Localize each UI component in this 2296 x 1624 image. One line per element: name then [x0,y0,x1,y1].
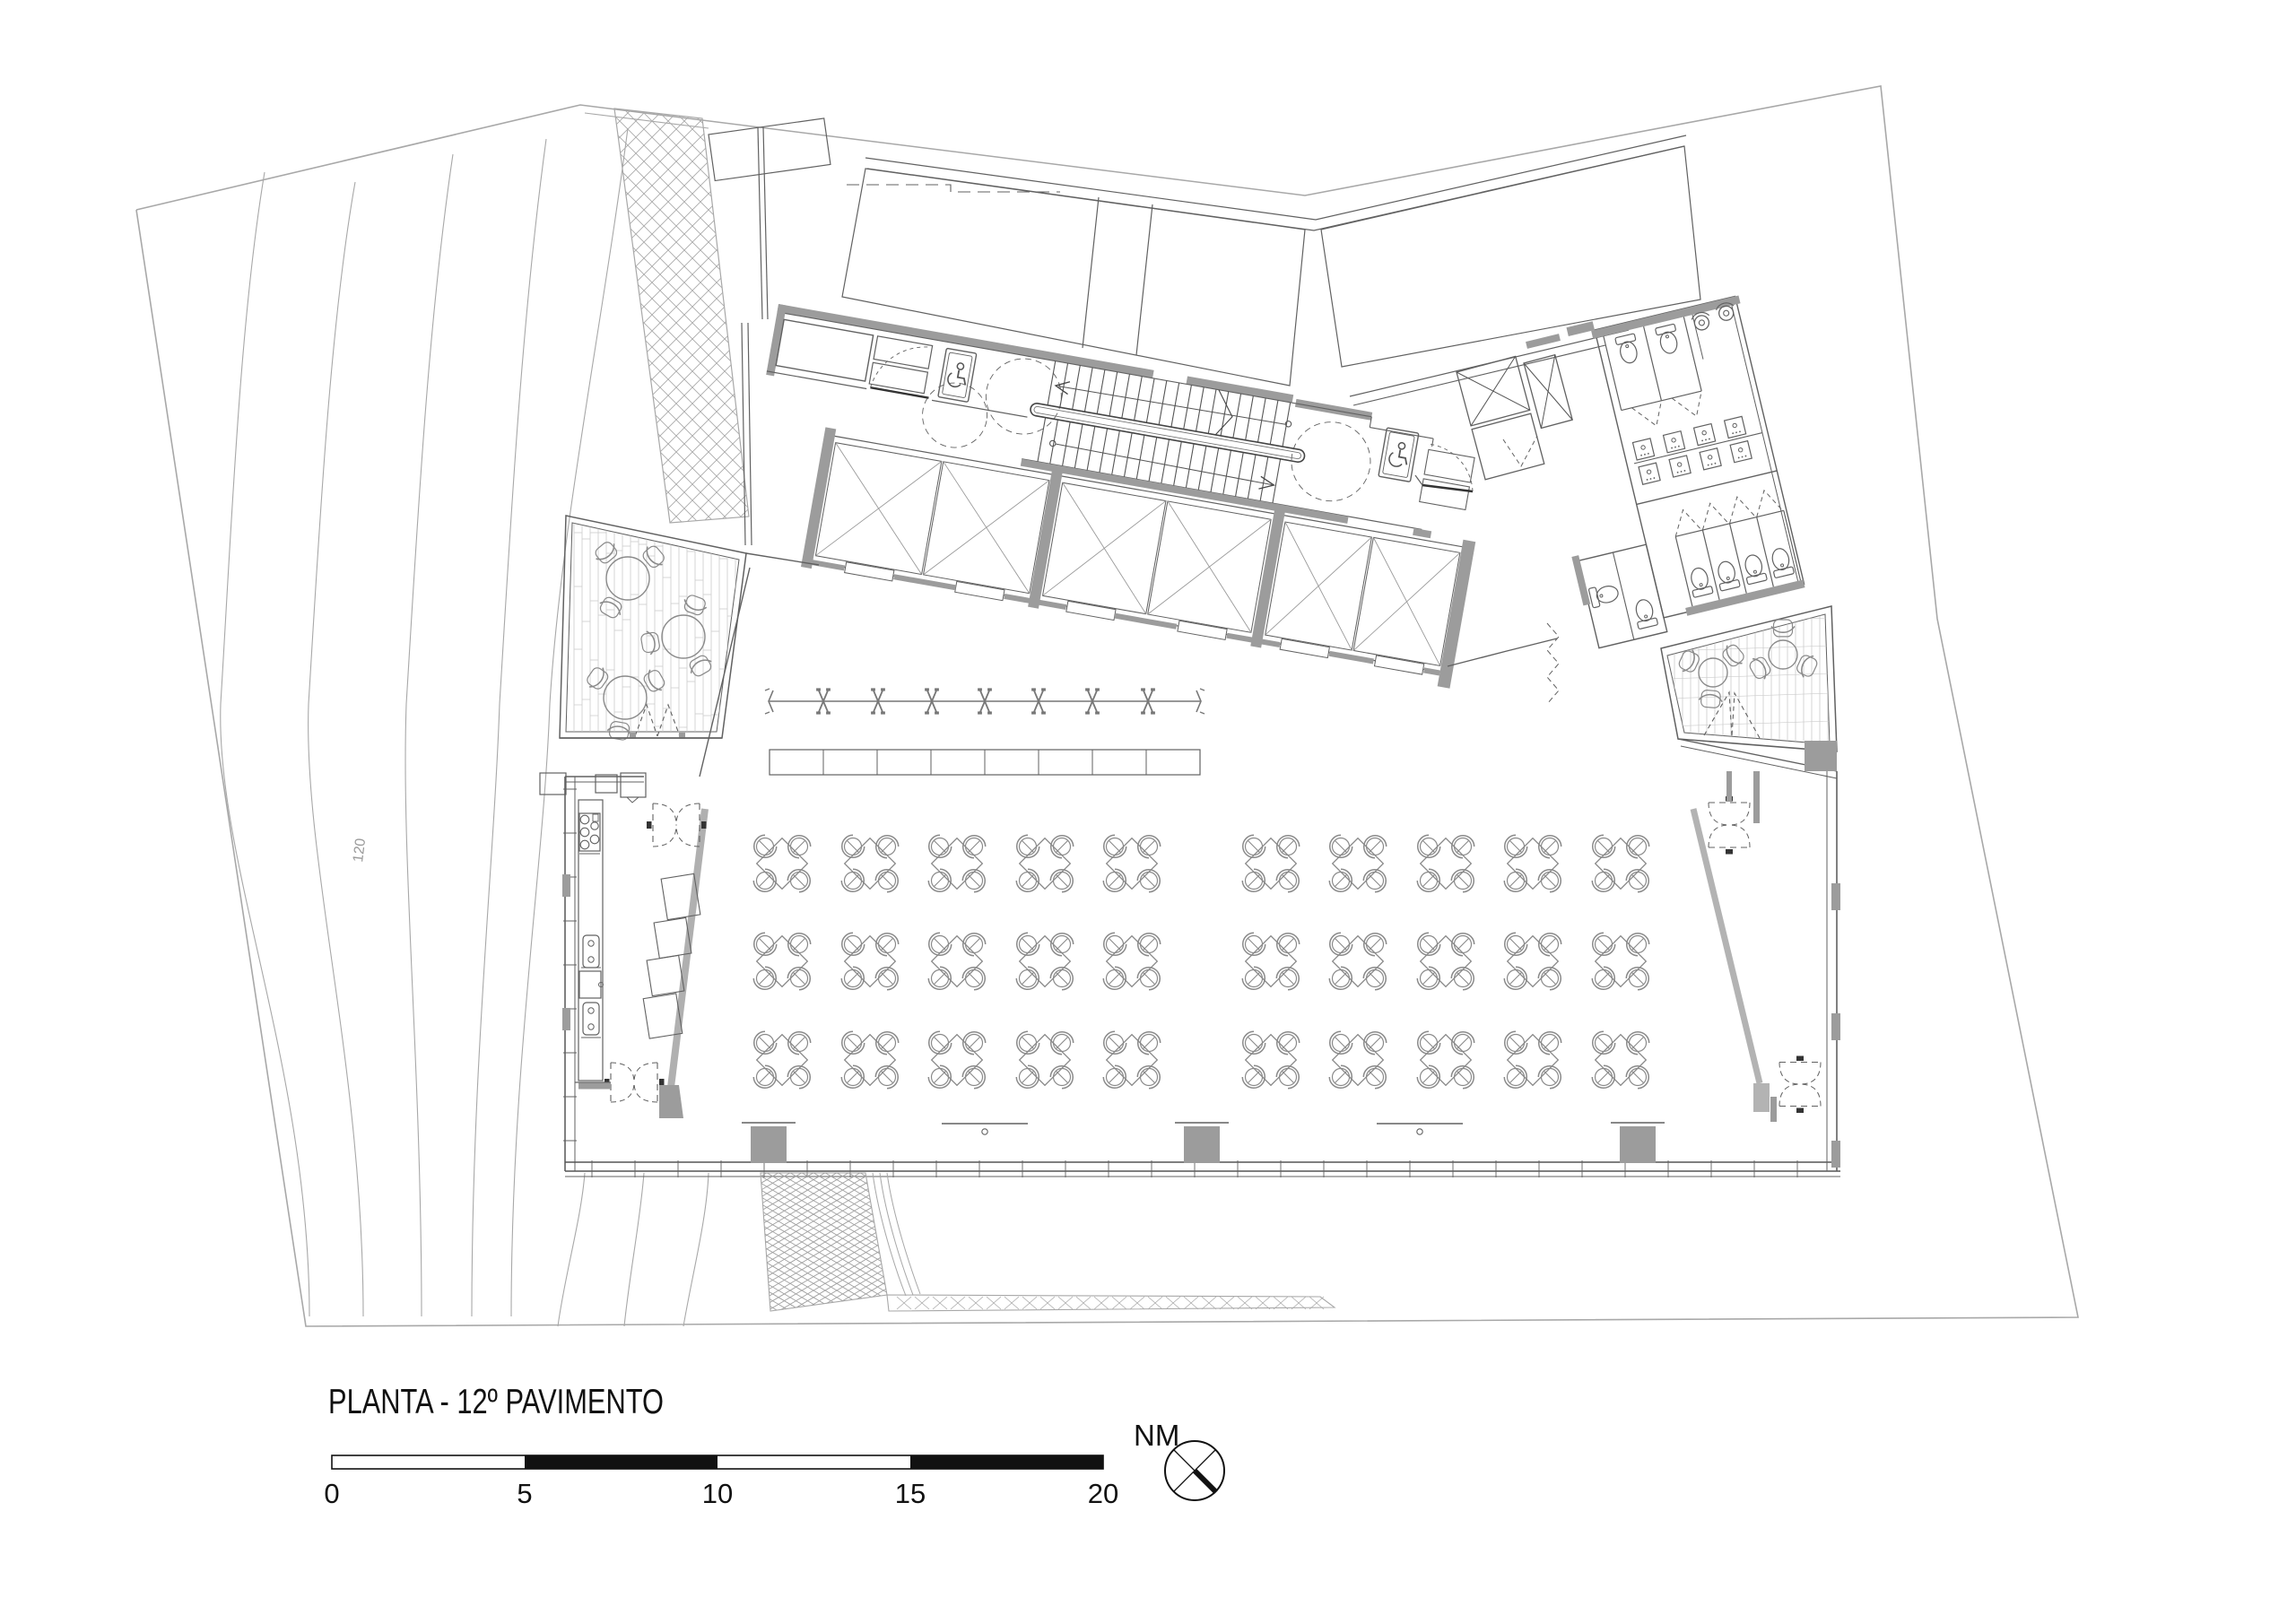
svg-text:NM: NM [1134,1419,1179,1452]
svg-text:0: 0 [324,1478,339,1509]
svg-text:10: 10 [702,1478,733,1509]
svg-text:PLANTA - 12º PAVIMENTO: PLANTA - 12º PAVIMENTO [328,1383,664,1421]
svg-text:120: 120 [351,838,369,864]
svg-text:5: 5 [517,1478,532,1509]
svg-text:15: 15 [895,1478,926,1509]
svg-text:20: 20 [1088,1478,1118,1509]
